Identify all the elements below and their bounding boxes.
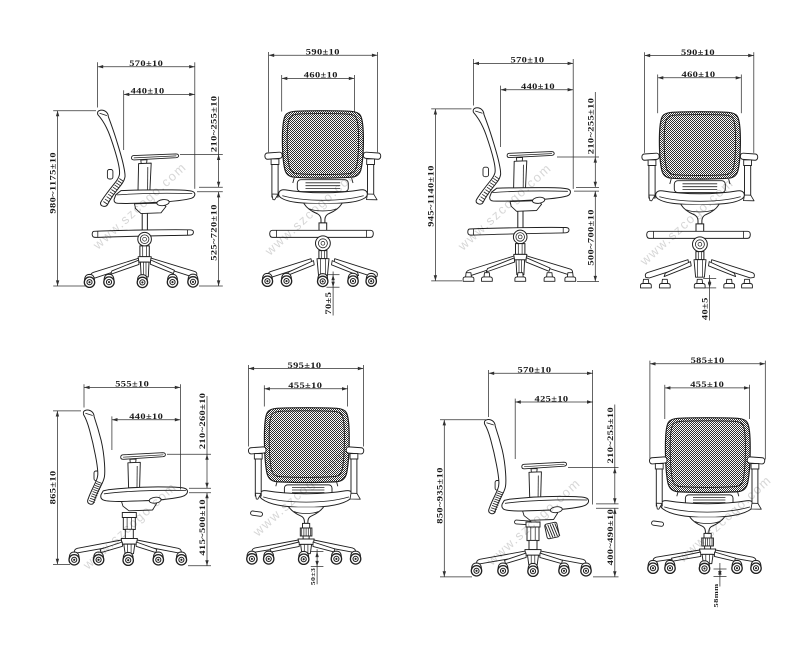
svg-text:590±10: 590±10: [306, 49, 340, 58]
svg-text:570±10: 570±10: [510, 57, 544, 66]
svg-text:50±3: 50±3: [310, 568, 317, 586]
svg-text:460±10: 460±10: [304, 72, 338, 81]
svg-text:865±10: 865±10: [49, 470, 58, 504]
svg-text:850~935±10: 850~935±10: [436, 467, 445, 524]
svg-text:590±10: 590±10: [681, 49, 715, 58]
svg-text:460±10: 460±10: [681, 71, 715, 80]
svg-text:210~255±10: 210~255±10: [211, 96, 220, 153]
svg-text:40±5: 40±5: [702, 297, 711, 320]
svg-text:500~700±10: 500~700±10: [587, 209, 596, 266]
svg-text:570±10: 570±10: [517, 367, 551, 376]
svg-text:210~255±10: 210~255±10: [607, 407, 616, 464]
svg-text:210~255±10: 210~255±10: [587, 98, 596, 155]
svg-text:945~1140±10: 945~1140±10: [427, 165, 436, 227]
svg-text:70±5: 70±5: [325, 292, 334, 315]
svg-text:440±10: 440±10: [129, 413, 163, 422]
svg-text:455±10: 455±10: [690, 381, 724, 390]
svg-text:570±10: 570±10: [129, 60, 163, 69]
svg-text:595±10: 595±10: [287, 362, 321, 371]
svg-text:455±10: 455±10: [288, 382, 322, 391]
svg-text:525~720±10: 525~720±10: [211, 204, 220, 261]
svg-text:585±10: 585±10: [691, 357, 725, 366]
svg-text:58mm: 58mm: [712, 583, 720, 607]
svg-text:425±10: 425±10: [534, 395, 568, 404]
svg-text:415~500±10: 415~500±10: [199, 499, 208, 556]
svg-text:210~260±10: 210~260±10: [199, 393, 208, 450]
svg-text:440±10: 440±10: [131, 88, 165, 97]
svg-text:980~1175±10: 980~1175±10: [50, 152, 59, 214]
svg-text:400~490±10: 400~490±10: [607, 509, 616, 566]
svg-text:440±10: 440±10: [521, 83, 555, 92]
svg-text:555±10: 555±10: [115, 381, 149, 390]
